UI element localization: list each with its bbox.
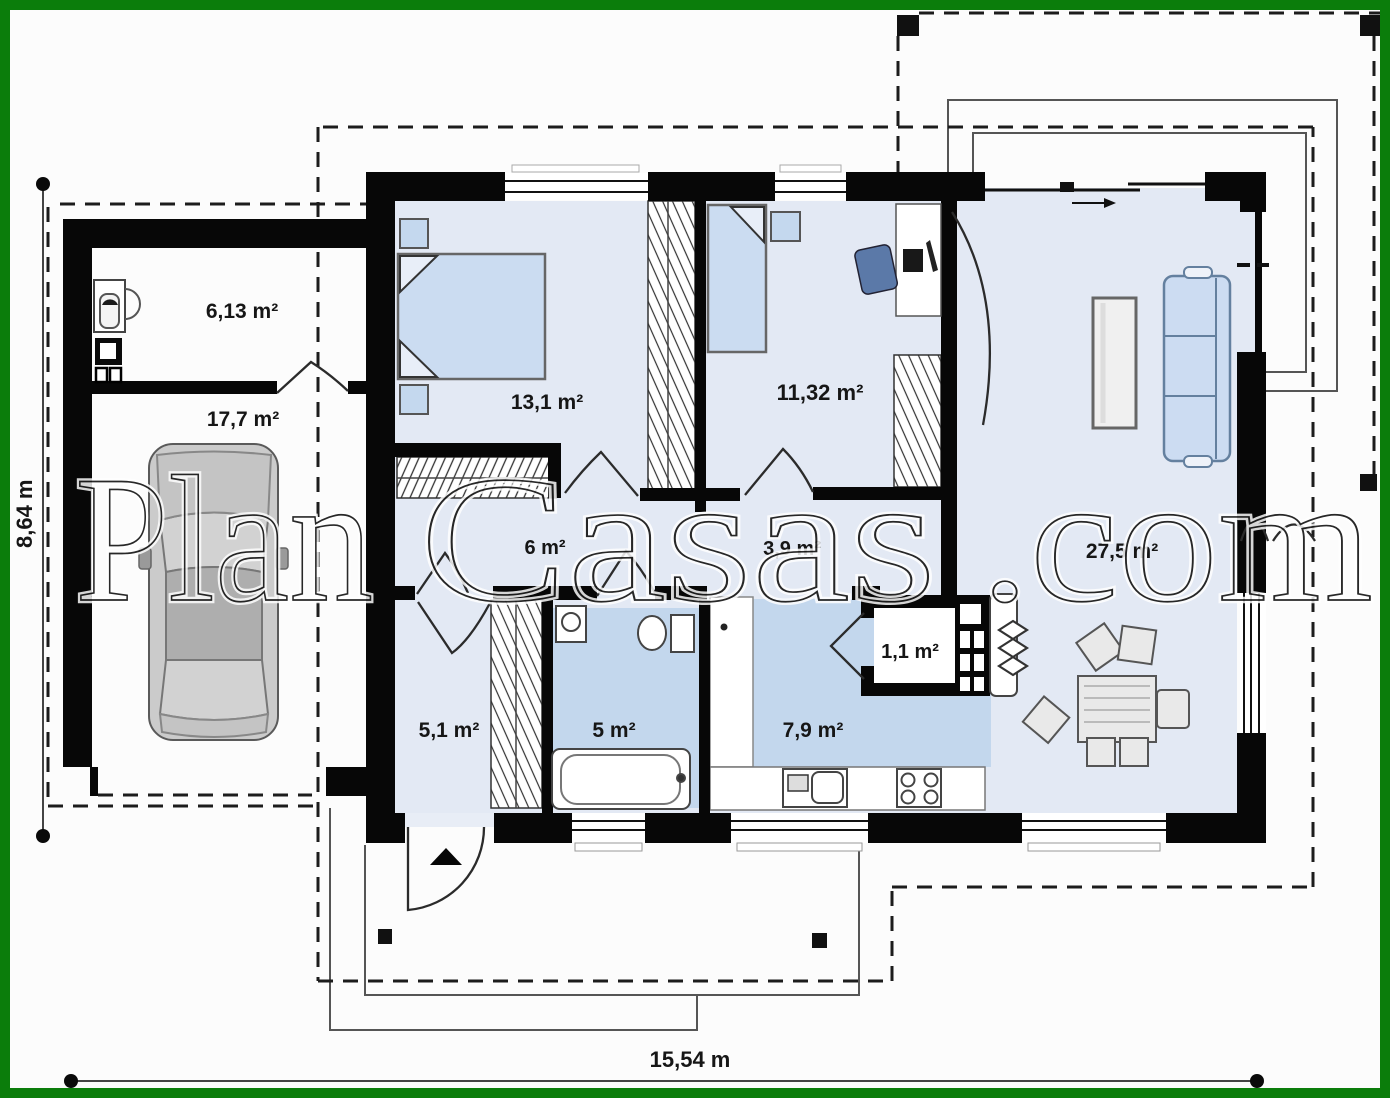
- svg-text:1,1 m²: 1,1 m²: [881, 641, 939, 663]
- svg-text:5 m²: 5 m²: [592, 719, 635, 742]
- svg-text:8,64 m: 8,64 m: [12, 480, 37, 549]
- svg-text:Casas: Casas: [420, 440, 936, 640]
- svg-text:13,1 m²: 13,1 m²: [511, 391, 583, 414]
- svg-text:7,9 m²: 7,9 m²: [783, 719, 844, 742]
- svg-text:11,32 m²: 11,32 m²: [777, 380, 864, 405]
- svg-text:15,54 m: 15,54 m: [650, 1047, 731, 1072]
- svg-text:6,13 m²: 6,13 m²: [206, 300, 278, 323]
- svg-text:5,1 m²: 5,1 m²: [419, 719, 480, 742]
- svg-text:17,7 m²: 17,7 m²: [207, 408, 279, 431]
- svg-text:Plan: Plan: [75, 440, 373, 640]
- svg-text:.com: .com: [980, 440, 1373, 640]
